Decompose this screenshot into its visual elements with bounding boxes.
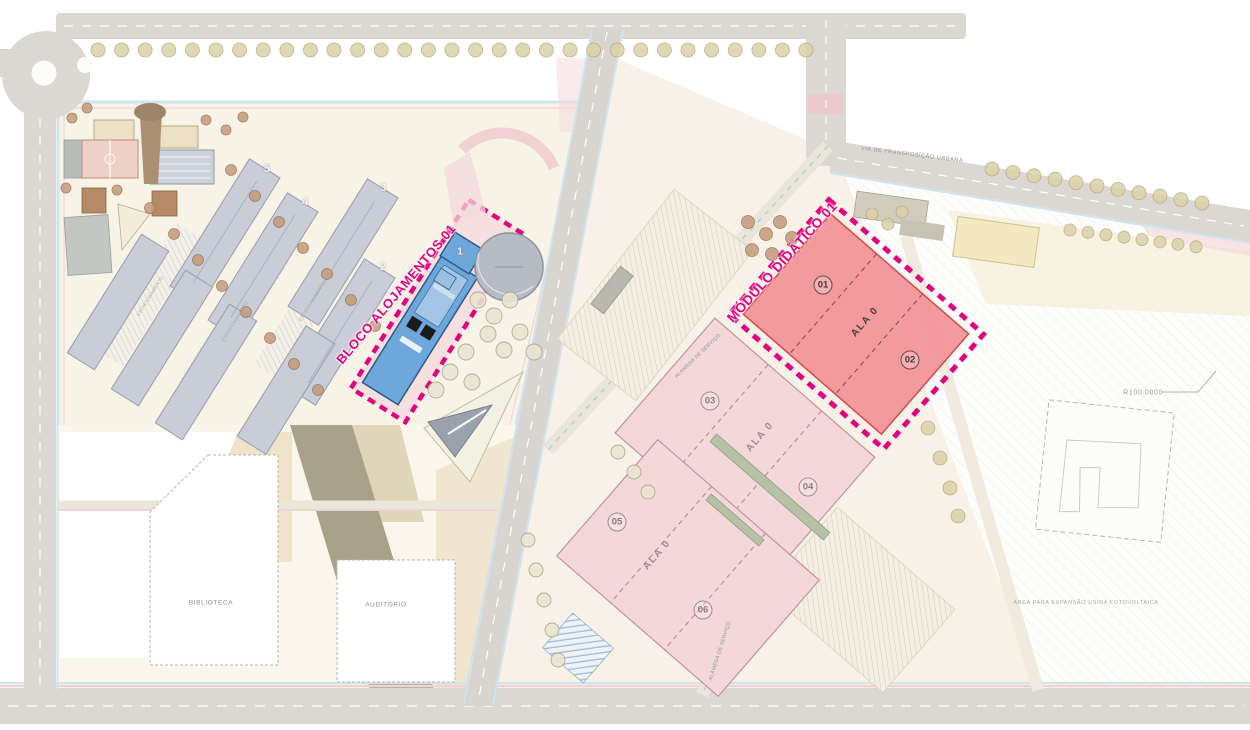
tree (217, 281, 228, 292)
unit-badge-03: 03 (701, 392, 720, 411)
tree (346, 295, 357, 306)
unit-badge-05: 05 (608, 513, 627, 532)
label-auditorio: AUDITÓRIO (365, 602, 407, 609)
tree (746, 244, 759, 257)
site-plan-drawing (0, 0, 1250, 730)
tree (169, 229, 180, 240)
tree (193, 255, 204, 266)
tree (921, 421, 935, 435)
tree (1111, 182, 1125, 196)
tree (82, 103, 92, 113)
tree (464, 374, 480, 390)
tree (280, 43, 294, 57)
future-building-outline (1035, 400, 1174, 542)
tree (112, 185, 122, 195)
tree (1153, 189, 1167, 203)
tree (627, 465, 641, 479)
tree (866, 208, 878, 220)
building-number-5: 5 (264, 163, 270, 175)
tree (634, 43, 648, 57)
tree (221, 125, 231, 135)
tree (752, 43, 766, 57)
tree (985, 162, 999, 176)
tree (526, 344, 542, 360)
tree (521, 533, 535, 547)
tree (115, 43, 129, 57)
tree (1174, 193, 1188, 207)
unit-badge-01: 01 (814, 276, 833, 295)
tree (681, 43, 695, 57)
label-biblioteca: BIBLIOTECA (189, 600, 233, 607)
tree (492, 43, 506, 57)
tree (1006, 165, 1020, 179)
site-plan: BLOCO ALOJAMENTOS 01 MÓDULO DIDÁTICO 01 … (0, 0, 1250, 730)
tree (265, 333, 276, 344)
tree (67, 113, 77, 123)
tree (775, 43, 789, 57)
tree (1069, 176, 1083, 190)
unit-badge-02: 02 (901, 351, 920, 370)
tree (545, 623, 559, 637)
tree (502, 292, 518, 308)
tree (1082, 226, 1094, 238)
tree (882, 218, 894, 230)
tree (445, 43, 459, 57)
tree (611, 445, 625, 459)
tree (1136, 234, 1148, 246)
tree (512, 324, 528, 340)
tree (1048, 172, 1062, 186)
annotation-expansion-area: ÁREA PARA EXPANSÃO USINA FOTOVOLTAICA (1013, 600, 1158, 606)
tree (539, 43, 553, 57)
building-number-2: 2 (380, 261, 386, 273)
tree (298, 243, 309, 254)
tree (1064, 224, 1076, 236)
tree (760, 228, 773, 241)
tree (428, 382, 444, 398)
tree (256, 43, 270, 57)
tree (529, 563, 543, 577)
tree (421, 43, 435, 57)
tree (1190, 241, 1202, 253)
tree (250, 191, 261, 202)
tree (1027, 169, 1041, 183)
tree (496, 342, 512, 358)
tree (327, 43, 341, 57)
tree (162, 43, 176, 57)
tree (933, 451, 947, 465)
tree (238, 112, 248, 122)
tree (896, 206, 908, 218)
tree (705, 43, 719, 57)
tree (774, 216, 787, 229)
tree (138, 43, 152, 57)
tree (1172, 238, 1184, 250)
tree (209, 43, 223, 57)
tree (442, 364, 458, 380)
tree (274, 217, 285, 228)
unit-badge-04: 04 (799, 478, 818, 497)
annotation-radius: R100.0000 (1123, 390, 1163, 397)
building-number-4: 4 (302, 196, 308, 208)
tree (233, 43, 247, 57)
tree (91, 43, 105, 57)
tree (1100, 229, 1112, 241)
tree (951, 509, 965, 523)
tree (799, 43, 813, 57)
tree (1090, 179, 1104, 193)
tree (610, 43, 624, 57)
tree (398, 43, 412, 57)
auditorio-building (337, 560, 455, 682)
tree (1195, 196, 1209, 210)
tree (289, 359, 300, 370)
building-number-1: 1 (457, 247, 463, 258)
tree (303, 43, 317, 57)
tree (313, 385, 324, 396)
tree (145, 203, 156, 214)
tree (470, 292, 486, 308)
tree (943, 481, 957, 495)
tree (1118, 231, 1130, 243)
tree (351, 43, 365, 57)
tree (641, 485, 655, 499)
tree (728, 43, 742, 57)
unit-badge-06: 06 (694, 601, 713, 620)
tree (587, 43, 601, 57)
tree (469, 43, 483, 57)
tree (537, 593, 551, 607)
tree (486, 308, 502, 324)
tree (516, 43, 530, 57)
tree (657, 43, 671, 57)
tree (226, 165, 237, 176)
tree (374, 43, 388, 57)
tree (551, 653, 565, 667)
tree (1154, 236, 1166, 248)
tree (742, 216, 755, 229)
tree (185, 43, 199, 57)
building-number-3: 3 (380, 182, 386, 194)
tree (201, 115, 211, 125)
tree (1132, 186, 1146, 200)
tree (480, 326, 496, 342)
tree (458, 344, 474, 360)
tree (61, 183, 71, 193)
tree (322, 269, 333, 280)
tree (563, 43, 577, 57)
